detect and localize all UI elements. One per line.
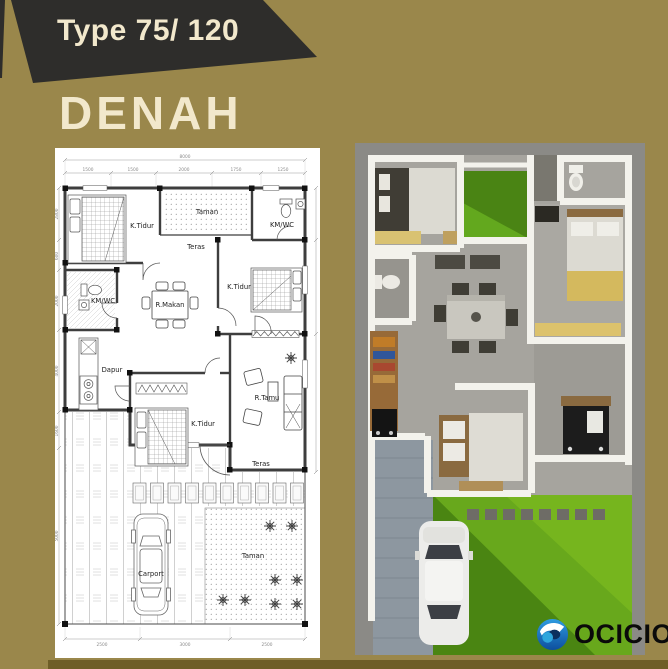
- dim-left-seg: 600: [55, 252, 60, 260]
- bed-icon: [251, 268, 302, 312]
- dim-left-seg: 5000: [55, 530, 60, 541]
- room-label: Teras: [186, 243, 205, 251]
- floor-plan-panel: 8000 1500 1500 2000 1750 1250 2800 600 2…: [55, 148, 320, 658]
- brand-name: OCICIO: [574, 619, 668, 650]
- room-label: Taman: [195, 208, 218, 216]
- room-label: R.Makan: [156, 301, 185, 309]
- dim-top-seg: 2000: [179, 167, 190, 173]
- type-badge-label: Type 75/ 120: [57, 14, 239, 48]
- dim-bottom-seg: 2500: [262, 642, 273, 648]
- room-label: Dapur: [102, 366, 123, 374]
- grass-patch: [463, 171, 533, 241]
- brand-logo: OCICIO: [536, 618, 668, 651]
- dim-bottom-seg: 2500: [97, 642, 108, 648]
- dim-left-seg: 4000: [55, 365, 60, 376]
- dim-top-seg: 1500: [83, 167, 94, 173]
- dim-bottom-seg: 3000: [180, 642, 191, 648]
- badge-edge-sliver: [0, 0, 6, 80]
- room-label: Taman: [241, 552, 264, 560]
- bed-icon: [135, 408, 188, 466]
- room-label: KM/WC: [91, 297, 115, 305]
- bottom-accent-bar: [48, 660, 668, 669]
- room-label: K.Tidur: [227, 283, 251, 291]
- dim-top-seg: 1250: [278, 167, 289, 173]
- toilet-icon: [280, 199, 305, 218]
- car-3d: [415, 521, 473, 645]
- kitchen-counter-icon: [79, 338, 98, 410]
- room-label: K.Tidur: [130, 222, 154, 230]
- window-zigzags: [252, 331, 299, 338]
- car-icon: [132, 514, 171, 615]
- ocicio-logo-icon: [536, 618, 569, 651]
- dim-top-seg: 1500: [128, 167, 139, 173]
- fridge-icon: [81, 340, 96, 354]
- room-label: R.Tamu: [255, 394, 280, 402]
- floor-plan-drawing: 8000 1500 1500 2000 1750 1250 2800 600 2…: [55, 148, 320, 658]
- wardrobe-icon: [136, 383, 187, 394]
- render-3d-drawing: [355, 143, 645, 655]
- room-label: KM/WC: [270, 221, 294, 229]
- dim-top-seg: 1750: [231, 167, 242, 173]
- dim-top-total: 8000: [180, 154, 191, 160]
- bed-3d: [375, 168, 457, 244]
- render-3d-panel: [355, 143, 645, 655]
- toilet-3d: [569, 165, 583, 191]
- stove-3d: [561, 396, 611, 454]
- room-label: K.Tidur: [191, 420, 215, 428]
- dim-left-seg: 1600: [55, 425, 60, 436]
- room-label: Carport: [138, 570, 164, 578]
- dim-left-seg: 2000: [55, 295, 60, 306]
- stove-icon: [80, 376, 97, 404]
- plant-icon: [285, 352, 297, 364]
- kitchen-3d: [370, 331, 398, 437]
- toilet-3d: [375, 275, 400, 289]
- poster: Type 75/ 120 DENAH: [0, 0, 668, 669]
- bed-icon: [68, 195, 126, 263]
- room-label: Teras: [251, 460, 270, 468]
- page-title: DENAH: [59, 86, 243, 140]
- dim-left-seg: 2800: [55, 208, 60, 219]
